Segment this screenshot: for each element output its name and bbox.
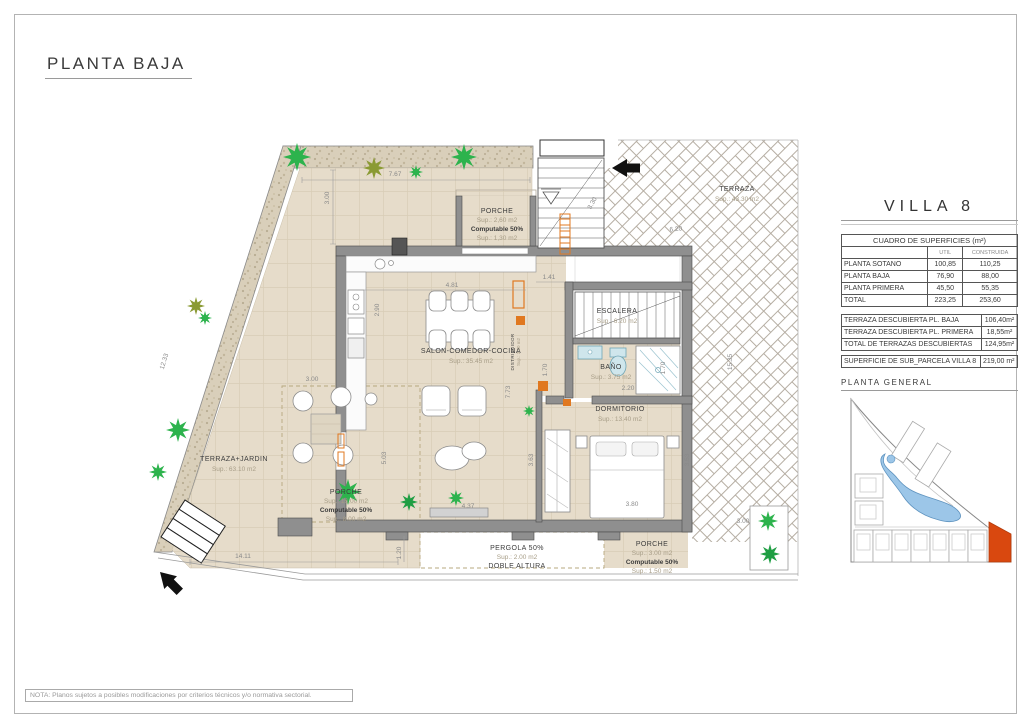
util-value: 45,50 bbox=[928, 283, 963, 295]
svg-text:15.35: 15.35 bbox=[727, 353, 734, 370]
svg-text:3.00: 3.00 bbox=[306, 376, 319, 383]
svg-text:2.90: 2.90 bbox=[374, 303, 381, 316]
col-util: UTIL bbox=[928, 247, 963, 259]
svg-text:5.03: 5.03 bbox=[381, 451, 388, 464]
svg-text:Sup.: 3.00 m2: Sup.: 3.00 m2 bbox=[632, 550, 673, 557]
row-label: SUPERFICIE DE SUB_PARCELA VILLA 8 bbox=[842, 356, 981, 368]
tv-bench bbox=[430, 508, 488, 517]
table-row: PLANTA PRIMERA 45,50 55,35 bbox=[842, 283, 1018, 295]
row-label: TERRAZA DESCUBIERTA PL. PRIMERA bbox=[842, 327, 982, 339]
terrace-table bbox=[311, 414, 341, 444]
svg-text:Sup.: 2,60 m2: Sup.: 2,60 m2 bbox=[477, 217, 518, 224]
svg-text:TERRAZA+JARDIN: TERRAZA+JARDIN bbox=[200, 456, 268, 463]
dining-table bbox=[426, 291, 494, 350]
villa-8-highlighted-plot bbox=[989, 522, 1011, 562]
blank-cell bbox=[842, 247, 928, 259]
note-box: NOTA: Planos sujetos a posibles modifica… bbox=[25, 689, 353, 702]
svg-text:SALON-COMEDOR-COCINA: SALON-COMEDOR-COCINA bbox=[421, 348, 521, 355]
table-row: PLANTA SOTANO 100,85 110,25 bbox=[842, 259, 1018, 271]
svg-text:PORCHE: PORCHE bbox=[481, 208, 513, 215]
construida-value: 55,35 bbox=[963, 283, 1018, 295]
armchair bbox=[422, 386, 450, 416]
util-value: 223,25 bbox=[928, 295, 963, 307]
row-label: PLANTA PRIMERA bbox=[842, 283, 928, 295]
svg-text:14.11: 14.11 bbox=[235, 553, 251, 560]
table-row: TOTAL DE TERRAZAS DESCUBIERTAS 124,95m² bbox=[842, 339, 1018, 351]
oven bbox=[348, 318, 364, 334]
svg-text:Computable 50%: Computable 50% bbox=[471, 226, 524, 233]
svg-text:7.67: 7.67 bbox=[389, 171, 402, 178]
svg-text:7.73: 7.73 bbox=[505, 385, 512, 398]
table-row: TERRAZA DESCUBIERTA PL. BAJA 106,40m² bbox=[842, 315, 1018, 327]
svg-text:Sup.: 43.30 m2: Sup.: 43.30 m2 bbox=[715, 196, 759, 203]
svg-text:3.80: 3.80 bbox=[626, 501, 639, 508]
util-value: 76,90 bbox=[928, 271, 963, 283]
svg-text:1.70: 1.70 bbox=[542, 363, 549, 376]
row-label: TERRAZA DESCUBIERTA PL. BAJA bbox=[842, 315, 982, 327]
svg-text:Sup.: 8.00 m2: Sup.: 8.00 m2 bbox=[326, 516, 367, 523]
svg-text:Sup.: 2.00 m2: Sup.: 2.00 m2 bbox=[497, 554, 538, 561]
svg-text:12.33: 12.33 bbox=[159, 352, 171, 370]
row-label: TOTAL DE TERRAZAS DESCUBIERTAS bbox=[842, 339, 982, 351]
svg-text:Sup.: 1.50 m2: Sup.: 1.50 m2 bbox=[632, 568, 673, 575]
kitchen-sink bbox=[375, 259, 385, 269]
sliding-door bbox=[462, 248, 528, 254]
svg-text:6.20: 6.20 bbox=[669, 225, 683, 233]
svg-text:Sup.: 63.10 m2: Sup.: 63.10 m2 bbox=[212, 466, 256, 473]
svg-text:ESCALERA: ESCALERA bbox=[597, 308, 638, 315]
svg-text:4.81: 4.81 bbox=[446, 282, 459, 289]
table-row: TOTAL 223,25 253,60 bbox=[842, 295, 1018, 307]
nightstand bbox=[576, 436, 587, 448]
wardrobe bbox=[545, 430, 570, 512]
svg-text:Sup.: 3.30 m2: Sup.: 3.30 m2 bbox=[516, 338, 521, 367]
svg-text:DOBLE ALTURA: DOBLE ALTURA bbox=[488, 563, 545, 570]
lounge-chair bbox=[293, 391, 313, 411]
svg-text:Sup.: 1,30 m2: Sup.: 1,30 m2 bbox=[477, 235, 518, 242]
svg-text:Sup.: 16.00 m2: Sup.: 16.00 m2 bbox=[324, 498, 368, 505]
pillow bbox=[632, 442, 658, 456]
fridge bbox=[348, 338, 364, 358]
chimney-block bbox=[392, 238, 407, 255]
svg-text:2.20: 2.20 bbox=[622, 385, 635, 392]
svg-text:Computable 50%: Computable 50% bbox=[626, 559, 679, 566]
surfaces-table: CUADRO DE SUPERFICIES (m²) UTIL CONSTRUI… bbox=[841, 234, 1018, 307]
row-label: PLANTA SOTANO bbox=[842, 259, 928, 271]
villa-row bbox=[854, 530, 987, 562]
nightstand bbox=[667, 436, 679, 448]
col-construida: CONSTRUIDA bbox=[963, 247, 1018, 259]
row-value: 219,00 m² bbox=[980, 356, 1017, 368]
row-label: TOTAL bbox=[842, 295, 928, 307]
interior-staircase bbox=[575, 292, 680, 338]
row-value: 106,40m² bbox=[981, 315, 1017, 327]
svg-text:3.63: 3.63 bbox=[528, 453, 535, 466]
surfaces-table-title: CUADRO DE SUPERFICIES (m²) bbox=[842, 235, 1018, 247]
table-row: TERRAZA DESCUBIERTA PL. PRIMERA 18,55m² bbox=[842, 327, 1018, 339]
side-table bbox=[365, 393, 377, 405]
row-value: 124,95m² bbox=[981, 339, 1017, 351]
title-rule bbox=[841, 220, 1018, 225]
entrance-arrow bbox=[154, 566, 187, 599]
svg-text:Sup.: 35.45 m2: Sup.: 35.45 m2 bbox=[449, 358, 493, 365]
door-leaf bbox=[538, 381, 548, 391]
row-label: PLANTA BAJA bbox=[842, 271, 928, 283]
svg-text:Sup.: 6.20 m2: Sup.: 6.20 m2 bbox=[597, 318, 638, 325]
construida-value: 253,60 bbox=[963, 295, 1018, 307]
svg-text:1.41: 1.41 bbox=[543, 274, 556, 281]
util-value: 100,85 bbox=[928, 259, 963, 271]
info-panel: VILLA 8 CUADRO DE SUPERFICIES (m²) UTIL … bbox=[841, 198, 1018, 581]
parcel-table: SUPERFICIE DE SUB_PARCELA VILLA 8 219,00… bbox=[841, 355, 1018, 368]
svg-text:PERGOLA 50%: PERGOLA 50% bbox=[490, 545, 544, 552]
lounge-chair bbox=[331, 387, 351, 407]
svg-text:Computable 50%: Computable 50% bbox=[320, 507, 373, 514]
lounge-chair bbox=[293, 443, 313, 463]
svg-text:BAÑO: BAÑO bbox=[600, 362, 622, 371]
svg-text:3.53: 3.53 bbox=[684, 453, 691, 466]
door-leaf bbox=[563, 399, 571, 406]
svg-text:3.00: 3.00 bbox=[737, 518, 750, 525]
villa-title: VILLA 8 bbox=[841, 198, 1018, 216]
svg-text:PORCHE: PORCHE bbox=[330, 489, 362, 496]
construida-value: 88,00 bbox=[963, 271, 1018, 283]
svg-text:Sup.: 13.40 m2: Sup.: 13.40 m2 bbox=[598, 416, 642, 423]
armchair bbox=[458, 386, 486, 416]
svg-text:3.00: 3.00 bbox=[324, 191, 331, 204]
construida-value: 110,25 bbox=[963, 259, 1018, 271]
svg-text:Sup.: 3.75 m2: Sup.: 3.75 m2 bbox=[591, 374, 632, 381]
planta-general-label: PLANTA GENERAL bbox=[841, 378, 1018, 391]
svg-text:PORCHE: PORCHE bbox=[636, 541, 668, 548]
hob bbox=[348, 290, 364, 314]
door-leaf bbox=[516, 316, 525, 325]
svg-text:TERRAZA: TERRAZA bbox=[719, 186, 754, 193]
site-plan bbox=[841, 396, 1017, 576]
svg-text:4.37: 4.37 bbox=[462, 503, 475, 510]
svg-text:DORMITORIO: DORMITORIO bbox=[595, 406, 645, 413]
svg-text:DISTRIBUIDOR: DISTRIBUIDOR bbox=[510, 333, 515, 370]
svg-text:1.20: 1.20 bbox=[396, 546, 403, 559]
pillow bbox=[596, 442, 626, 456]
svg-text:1.70: 1.70 bbox=[660, 361, 667, 374]
terraces-table: TERRAZA DESCUBIERTA PL. BAJA 106,40m² TE… bbox=[841, 314, 1018, 351]
table-row: PLANTA BAJA 76,90 88,00 bbox=[842, 271, 1018, 283]
row-value: 18,55m² bbox=[981, 327, 1017, 339]
table-row: SUPERFICIE DE SUB_PARCELA VILLA 8 219,00… bbox=[842, 356, 1018, 368]
